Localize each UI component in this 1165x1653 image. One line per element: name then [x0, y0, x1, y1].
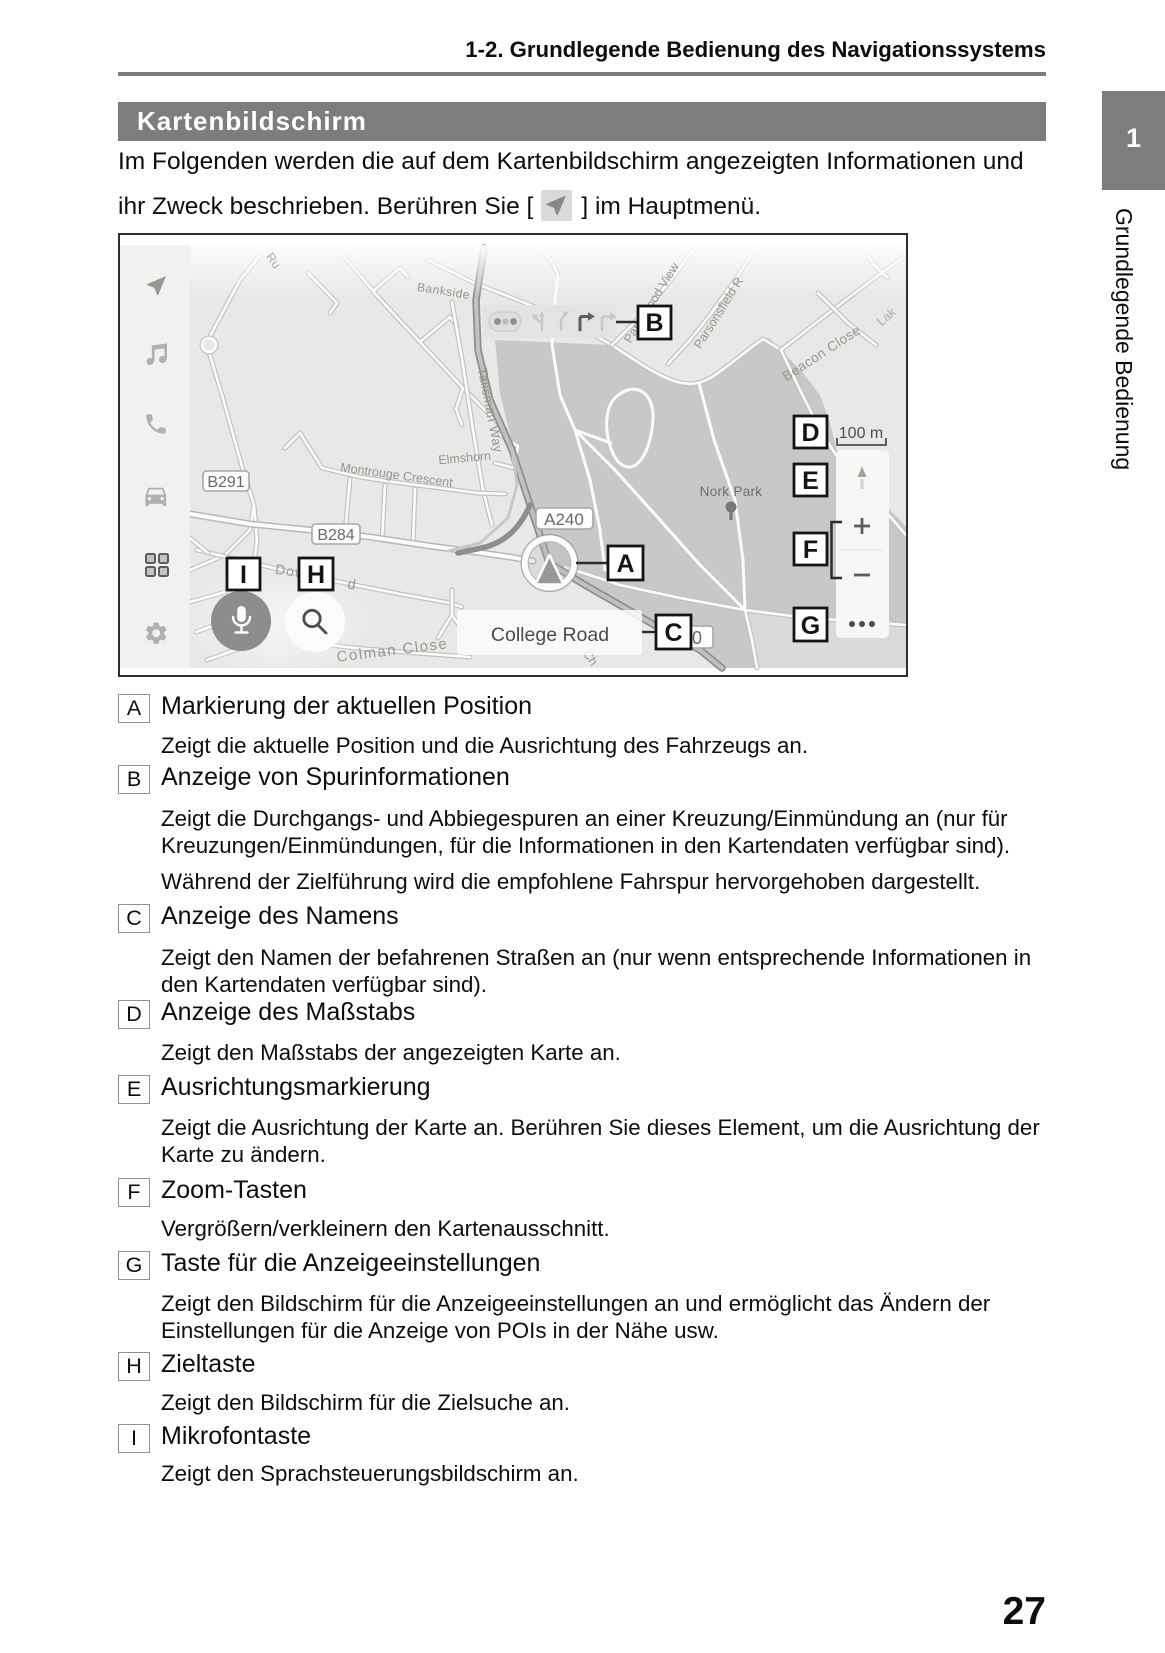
svg-text:A240: A240: [544, 510, 584, 529]
svg-text:B291: B291: [207, 474, 244, 491]
svg-text:G: G: [801, 612, 820, 640]
svg-text:A: A: [616, 550, 634, 578]
svg-text:0: 0: [692, 628, 702, 648]
svg-text:F: F: [803, 536, 818, 564]
svg-text:E: E: [802, 467, 819, 495]
svg-text:C: C: [664, 619, 682, 647]
svg-text:College Road: College Road: [491, 624, 609, 646]
svg-text:100 m: 100 m: [839, 425, 883, 442]
svg-text:Nork Park: Nork Park: [700, 484, 763, 499]
svg-text:B: B: [645, 309, 663, 337]
svg-text:D: D: [801, 419, 819, 447]
svg-text:B284: B284: [317, 527, 354, 544]
svg-text:I: I: [240, 561, 247, 589]
svg-text:H: H: [307, 561, 325, 589]
